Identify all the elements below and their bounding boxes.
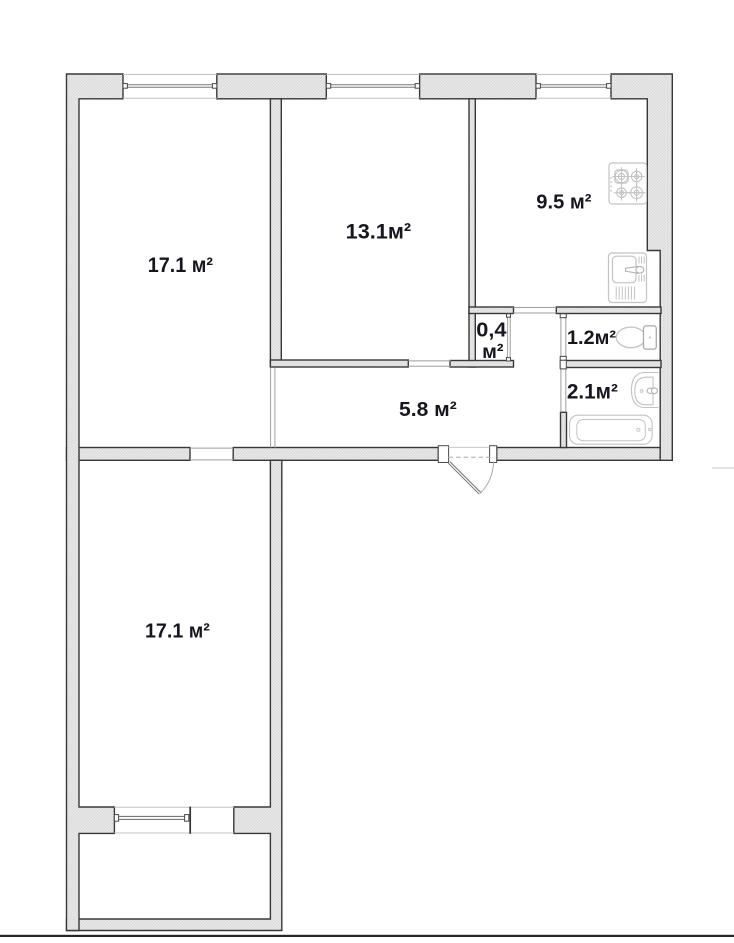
svg-text:13.1м²: 13.1м² — [346, 218, 412, 243]
svg-text:5.8 м²: 5.8 м² — [399, 398, 457, 421]
svg-text:1.2м²: 1.2м² — [567, 327, 617, 349]
svg-text:17.1 м²: 17.1 м² — [148, 254, 213, 277]
svg-text:м²: м² — [482, 341, 504, 363]
svg-text:2.1м²: 2.1м² — [567, 380, 618, 403]
svg-text:17.1 м²: 17.1 м² — [145, 621, 210, 643]
svg-text:9.5 м²: 9.5 м² — [536, 190, 591, 213]
svg-text:0,4: 0,4 — [476, 319, 507, 341]
